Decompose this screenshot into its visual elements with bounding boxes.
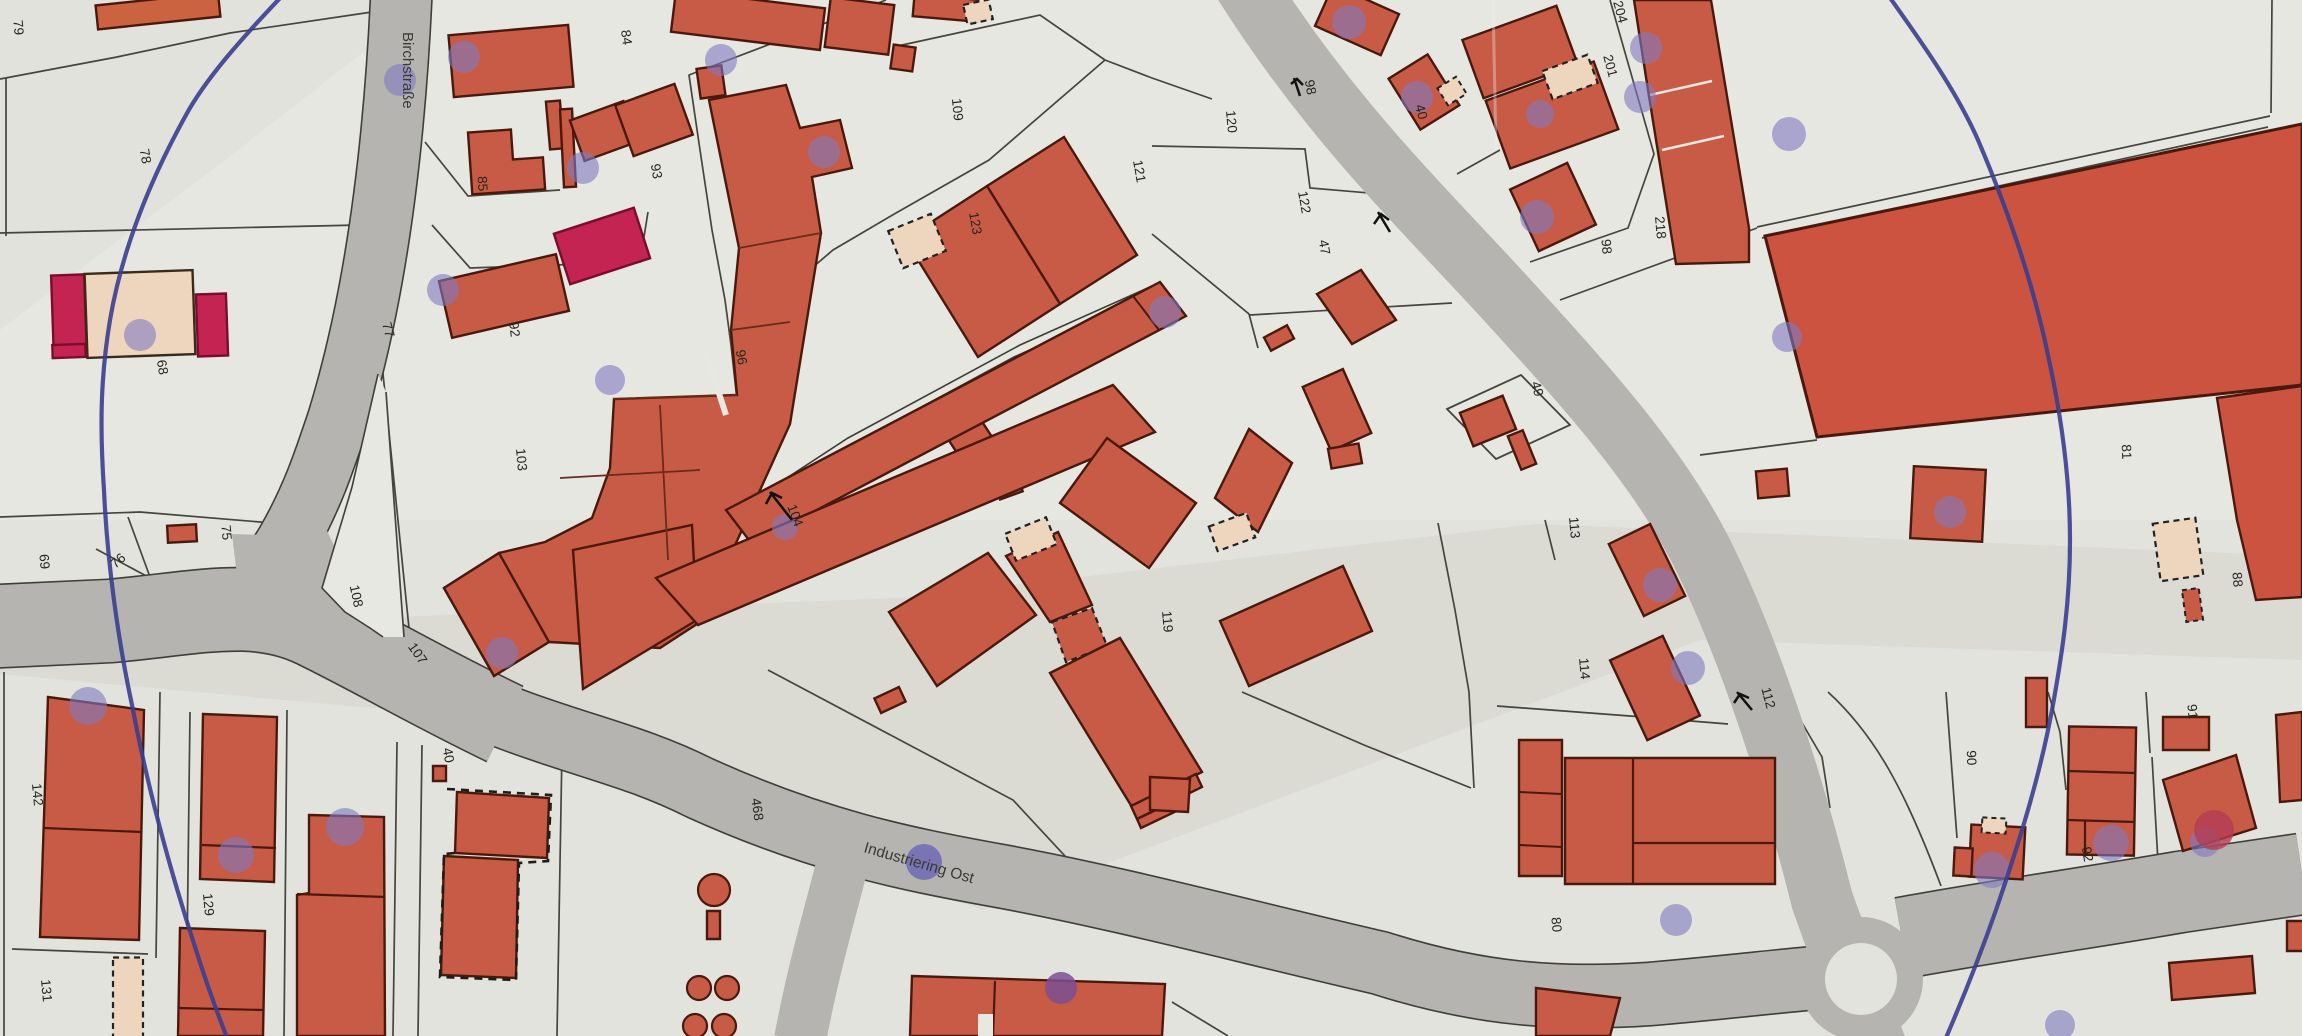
svg-text:80: 80 xyxy=(1548,916,1564,932)
svg-text:120: 120 xyxy=(1223,110,1240,134)
svg-text:103: 103 xyxy=(513,448,530,472)
svg-text:47: 47 xyxy=(1316,239,1333,256)
svg-text:142: 142 xyxy=(29,783,46,807)
svg-text:75: 75 xyxy=(218,524,234,540)
svg-text:90: 90 xyxy=(1964,750,1980,766)
svg-text:468: 468 xyxy=(748,797,766,821)
svg-text:79: 79 xyxy=(10,19,26,35)
svg-text:84: 84 xyxy=(618,29,635,46)
svg-text:91: 91 xyxy=(2184,703,2200,719)
svg-text:131: 131 xyxy=(38,979,55,1003)
svg-text:88: 88 xyxy=(2229,571,2245,587)
svg-text:114: 114 xyxy=(1576,657,1593,680)
svg-text:81: 81 xyxy=(2119,444,2135,460)
svg-text:Birchstraße: Birchstraße xyxy=(399,32,416,109)
svg-text:98: 98 xyxy=(1598,238,1614,254)
svg-text:40: 40 xyxy=(440,747,457,764)
svg-text:92: 92 xyxy=(506,321,523,338)
svg-text:113: 113 xyxy=(1566,516,1583,539)
svg-text:109: 109 xyxy=(949,98,966,122)
svg-text:98: 98 xyxy=(1302,79,1319,96)
svg-text:92: 92 xyxy=(2079,846,2096,863)
svg-text:68: 68 xyxy=(154,359,171,376)
svg-text:119: 119 xyxy=(1159,610,1176,633)
svg-text:85: 85 xyxy=(474,176,490,192)
svg-text:129: 129 xyxy=(200,893,217,917)
svg-text:96: 96 xyxy=(733,349,750,366)
svg-text:78: 78 xyxy=(137,148,154,165)
svg-text:93: 93 xyxy=(648,163,665,180)
svg-text:218: 218 xyxy=(1652,216,1669,240)
svg-text:69: 69 xyxy=(36,553,52,569)
